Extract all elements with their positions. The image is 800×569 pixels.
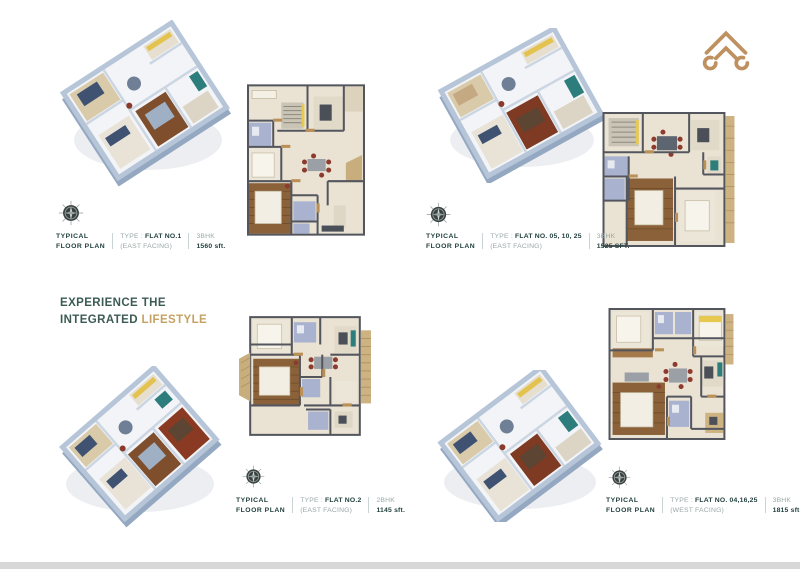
caption-divider <box>765 497 766 513</box>
heading-lifestyle: LIFESTYLE <box>142 314 208 326</box>
plan-caption-area: 2BHK 1145 sft. <box>376 496 405 516</box>
floor-plan-3d-render-3 <box>52 366 227 528</box>
plan-caption-area: 3BHK 1525 SFT. <box>597 232 630 252</box>
plan-caption-area: 3BHK 1815 sft. <box>773 496 800 516</box>
heading-line1: EXPERIENCE THE <box>60 295 207 312</box>
plan-caption-title: TYPICAL FLOOR PLAN <box>606 496 655 516</box>
caption-divider <box>662 497 663 513</box>
page-heading: EXPERIENCE THE INTEGRATED LIFESTYLE <box>60 295 207 330</box>
compass-rose-icon <box>241 464 266 489</box>
plan-caption-area: 3BHK 1560 sft. <box>196 232 225 252</box>
caption-divider <box>368 497 369 513</box>
heading-integrated: INTEGRATED <box>60 314 138 326</box>
plan-caption-1: TYPICAL FLOOR PLAN TYPE : FLAT NO.1 (EAS… <box>56 232 225 252</box>
caption-divider <box>292 497 293 513</box>
plan-caption-type: TYPE : FLAT NO. 05, 10, 25 (EAST FACING) <box>490 232 582 252</box>
roof-emblem-icon <box>698 24 754 76</box>
caption-divider <box>112 233 113 249</box>
floor-plan-2d-1 <box>247 84 365 236</box>
floor-plan-2d-2 <box>602 112 736 247</box>
floor-plan-2d-3 <box>237 316 373 436</box>
caption-divider <box>589 233 590 249</box>
caption-divider <box>188 233 189 249</box>
compass-rose-icon <box>57 199 85 227</box>
heading-line2: INTEGRATED LIFESTYLE <box>60 312 207 329</box>
plan-caption-type: TYPE : FLAT NO. 04,16,25 (WEST FACING) <box>670 496 757 516</box>
plan-caption-4: TYPICAL FLOOR PLAN TYPE : FLAT NO. 04,16… <box>606 496 800 516</box>
plan-caption-title: TYPICAL FLOOR PLAN <box>236 496 285 516</box>
compass-rose-icon <box>425 201 452 228</box>
plan-caption-type: TYPE : FLAT NO.1 (EAST FACING) <box>120 232 181 252</box>
plan-caption-3: TYPICAL FLOOR PLAN TYPE : FLAT NO.2 (EAS… <box>236 496 405 516</box>
brochure-page: EXPERIENCE THE INTEGRATED LIFESTYLE <box>0 0 800 569</box>
floor-plan-3d-render-2 <box>436 28 608 183</box>
page-bottom-edge <box>0 562 800 569</box>
floor-plan-2d-4 <box>608 308 736 440</box>
plan-caption-title: TYPICAL FLOOR PLAN <box>56 232 105 252</box>
floor-plan-3d-render-1 <box>58 20 233 188</box>
floor-plan-3d-render-4 <box>430 370 608 522</box>
plan-caption-type: TYPE : FLAT NO.2 (EAST FACING) <box>300 496 361 516</box>
plan-caption-title: TYPICAL FLOOR PLAN <box>426 232 475 252</box>
caption-divider <box>482 233 483 249</box>
plan-caption-2: TYPICAL FLOOR PLAN TYPE : FLAT NO. 05, 1… <box>426 232 630 252</box>
compass-rose-icon <box>607 465 632 490</box>
